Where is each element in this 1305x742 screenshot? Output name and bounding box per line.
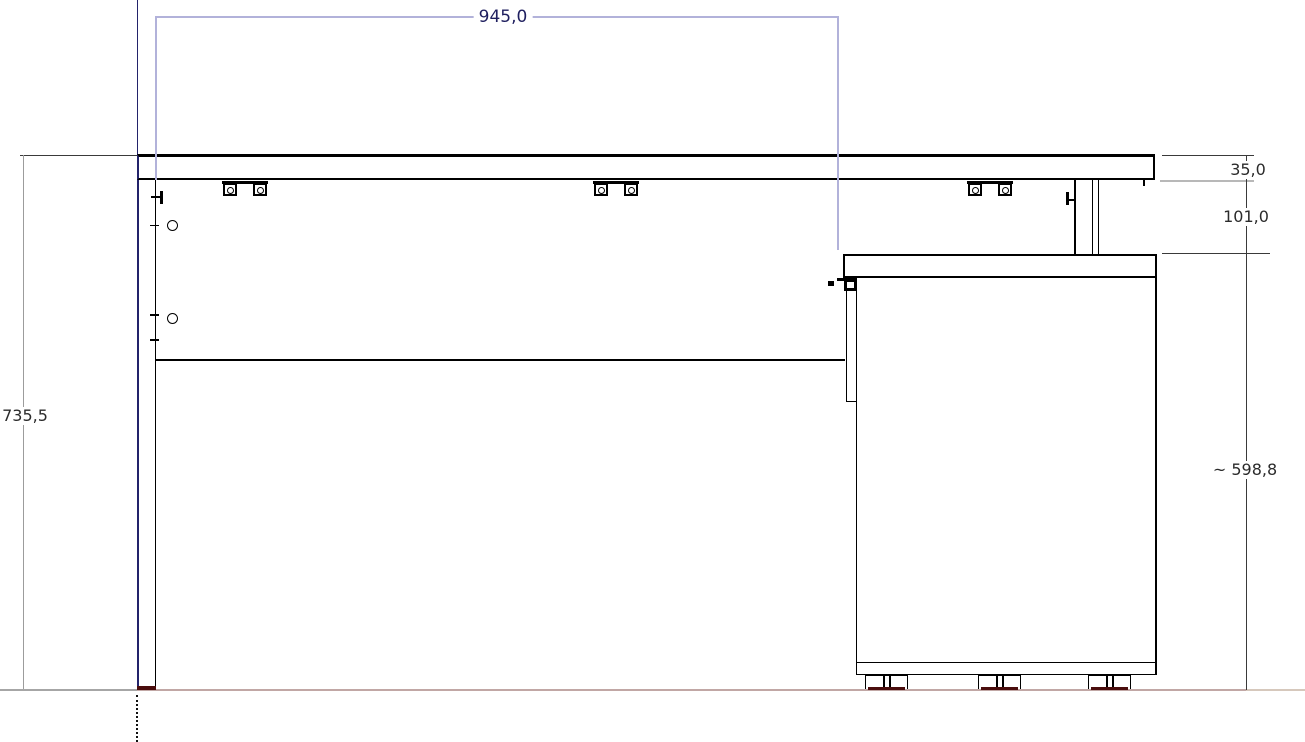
screw-hole-icon [227,187,234,194]
door-gap-edge [846,281,848,402]
door-gap-edge [846,401,857,403]
screw-hole-icon [598,187,605,194]
drill-hole [167,220,178,231]
dim-clearance-ext-bottom [1162,253,1270,254]
support-post [1098,180,1100,254]
side-panel-floor-contact [137,686,156,690]
dim-overall-height-ext-top [20,155,137,156]
dim-thickness-label: 35,0 [1225,161,1271,179]
tick-mark [150,225,159,227]
hook-bracket-icon [828,281,834,286]
foot-floor-contact [868,687,905,691]
support-post [1074,180,1076,254]
dim-thickness-ext-top [1162,155,1254,156]
projection-line-left [137,0,139,155]
worktop-fixing-bracket [967,180,1013,197]
tick-mark [150,314,159,316]
support-post [1092,180,1094,254]
pedestal-top-panel [843,254,1157,278]
dim-thickness-ext-bottom [1160,180,1254,182]
dim-top-width-label: 945,0 [474,8,533,26]
worktop-fixing-bracket [593,180,639,197]
foot-floor-contact [1091,687,1128,691]
screw-hole-icon [257,187,264,194]
modesty-panel-bottom-edge [156,359,845,361]
floor-line-right [1246,689,1305,692]
floor-line-left [0,689,137,692]
tick-mark [150,339,159,341]
dim-top-width-ext-right [837,16,839,250]
screw-hole-icon [972,187,979,194]
foot-floor-contact [981,687,1018,691]
centerline-dotted [136,695,138,742]
worktop [137,154,1155,180]
tick-mark [1143,180,1145,186]
screw-hole-icon [1002,187,1009,194]
dim-clearance-label: 101,0 [1218,208,1274,226]
floor-line-center [137,689,1246,692]
screw-hole-icon [628,187,635,194]
pedestal-plinth [856,663,1157,675]
pedestal-body [856,278,1157,663]
dim-top-width-ext-left [155,16,157,180]
worktop-fixing-bracket [222,180,268,197]
clamp-icon [160,191,163,204]
dim-cabinet-height-label: ~ 598,8 [1208,461,1282,479]
hook-bracket-icon [844,279,857,291]
drill-hole [167,313,178,324]
technical-drawing-canvas: 945,0 735,5 35,0 101,0 ~ 598,8 [0,0,1305,742]
clamp-icon [1066,199,1076,201]
side-panel-left [137,180,156,689]
dim-overall-height-label: 735,5 [0,407,53,425]
